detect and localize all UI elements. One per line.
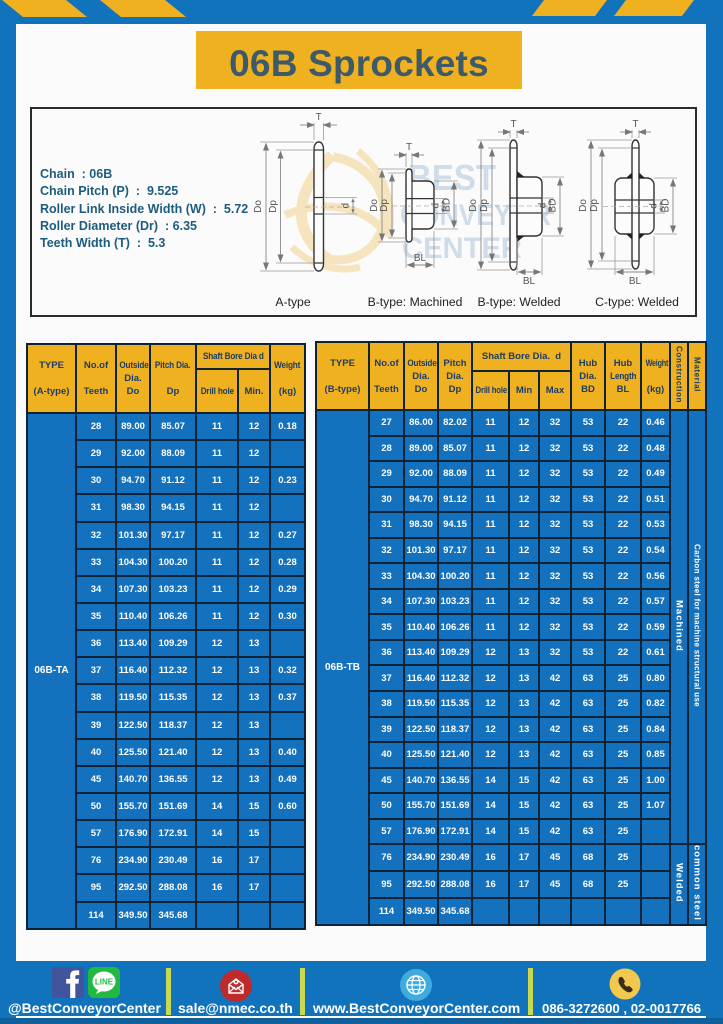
svg-text:BL: BL [523, 276, 536, 287]
svg-text:BL: BL [414, 253, 427, 264]
svg-text:Dp: Dp [268, 200, 279, 213]
svg-text:Dp: Dp [379, 199, 390, 212]
svg-text:BL: BL [629, 276, 642, 287]
svg-text:Do: Do [578, 199, 589, 212]
svg-text:d: d [341, 203, 352, 209]
svg-text:BD: BD [442, 198, 453, 212]
svg-text:A-type: A-type [275, 295, 310, 309]
svg-text:B-type: Machined: B-type: Machined [368, 295, 463, 309]
svg-text:d: d [431, 203, 442, 209]
svg-text:Dp: Dp [479, 199, 490, 212]
svg-text:T: T [632, 119, 638, 130]
svg-text:Dp: Dp [589, 199, 600, 212]
svg-text:Do: Do [253, 200, 264, 213]
svg-text:T: T [406, 142, 412, 153]
svg-text:LINE: LINE [95, 978, 114, 987]
svg-text:d: d [649, 203, 660, 209]
svg-text:B-type: Welded: B-type: Welded [477, 295, 560, 309]
svg-text:T: T [316, 112, 322, 123]
svg-text:T: T [510, 119, 516, 130]
svg-text:BD: BD [661, 199, 672, 213]
svg-text:C-type: Welded: C-type: Welded [595, 295, 679, 309]
svg-text:BD: BD [548, 199, 559, 213]
svg-text:Do: Do [468, 199, 479, 212]
